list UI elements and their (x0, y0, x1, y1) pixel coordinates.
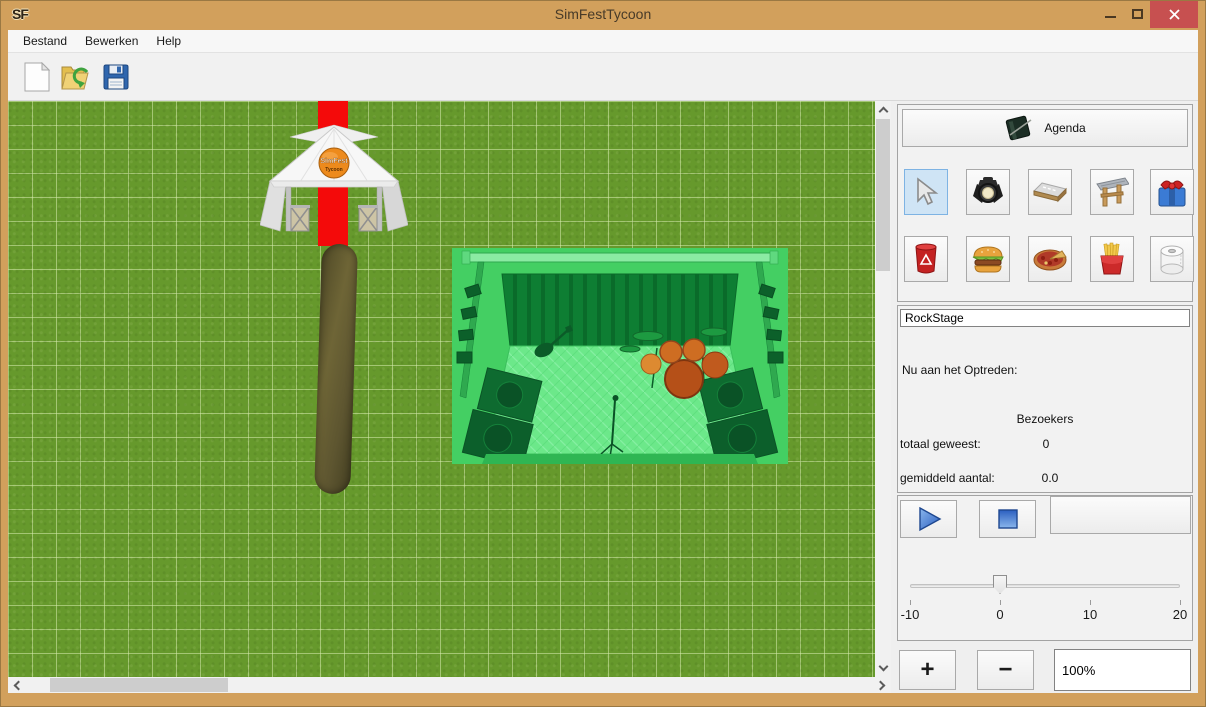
tool-entrance-gate[interactable] (1090, 169, 1134, 215)
scroll-up-button[interactable] (875, 101, 891, 118)
chevron-right-icon (876, 680, 886, 690)
crowd-barrier-left (290, 205, 310, 231)
play-button[interactable] (900, 500, 957, 538)
tool-fries-stand[interactable] (1090, 236, 1134, 282)
tick-mark (1180, 600, 1181, 605)
svg-text:Tycoon: Tycoon (325, 167, 342, 173)
play-icon (916, 506, 942, 532)
save-file-button[interactable] (100, 61, 132, 93)
open-file-button[interactable] (59, 61, 91, 93)
now-performing-label: Nu aan het Optreden: (902, 363, 1017, 377)
slider-track[interactable] (910, 584, 1180, 588)
maximize-button[interactable] (1124, 0, 1150, 28)
average-visitors-value: 0.0 (1030, 471, 1070, 485)
spotlight-icon (972, 176, 1004, 208)
slider-thumb[interactable] (993, 575, 1007, 594)
cursor-icon (912, 177, 940, 207)
minimize-icon (1105, 16, 1116, 18)
vertical-scroll-thumb[interactable] (876, 119, 890, 271)
save-floppy-icon (102, 63, 130, 91)
simfest-logo: SimFest Tycoon (319, 148, 349, 178)
entrance-gate-icon (1095, 176, 1129, 208)
toilet-paper-icon (1157, 243, 1187, 275)
simulation-section: -10 0 10 20 (897, 495, 1193, 641)
menu-bar: Bestand Bewerken Help (8, 30, 1198, 53)
agenda-book-icon (1004, 115, 1034, 141)
total-visitors-label: totaal geweest: (900, 437, 981, 451)
chevron-left-icon (14, 680, 24, 690)
new-file-icon (24, 62, 50, 92)
scroll-down-button[interactable] (875, 660, 891, 677)
festival-map-canvas[interactable]: SimFest Tycoon (8, 101, 891, 693)
agenda-label: Agenda (1044, 121, 1085, 135)
tick-label-zero: 0 (983, 607, 1017, 622)
open-folder-icon (60, 63, 90, 91)
road-tile-icon (1033, 179, 1067, 205)
app-window: SF SimFestTycoon Bestand Bewerken Help (0, 0, 1206, 707)
title-bar[interactable]: SF SimFestTycoon (0, 0, 1206, 30)
tick-label-min: -10 (893, 607, 927, 622)
vertical-scrollbar[interactable] (875, 101, 891, 677)
tick-label-max: 20 (1163, 607, 1197, 622)
menu-help[interactable]: Help (147, 30, 190, 52)
minimize-button[interactable] (1096, 0, 1124, 28)
status-button[interactable] (1050, 496, 1191, 534)
close-icon (1169, 9, 1180, 20)
stop-button[interactable] (979, 500, 1036, 538)
menu-bewerken[interactable]: Bewerken (76, 30, 147, 52)
entrance-tent[interactable]: SimFest Tycoon (260, 121, 408, 246)
maximize-icon (1132, 9, 1143, 19)
tool-trash-bin[interactable] (904, 236, 948, 282)
horizontal-scroll-thumb[interactable] (50, 678, 228, 692)
tool-toilet[interactable] (1150, 236, 1194, 282)
pizza-icon (1032, 245, 1068, 273)
visitors-header: Bezoekers (898, 412, 1192, 426)
tick-mark (910, 600, 911, 605)
trash-bin-icon (912, 243, 940, 275)
zoom-level-field[interactable] (1054, 649, 1191, 691)
tool-select-cursor[interactable] (904, 169, 948, 215)
stage-selected[interactable] (452, 248, 788, 464)
tool-burger-stand[interactable] (966, 236, 1010, 282)
horizontal-scrollbar[interactable] (8, 677, 891, 693)
new-file-button[interactable] (21, 61, 53, 93)
tools-section: Agenda (897, 104, 1193, 302)
tool-gift[interactable] (1150, 169, 1194, 215)
gift-icon (1155, 175, 1189, 209)
crowd-barrier-right (358, 205, 378, 231)
toolbar (8, 53, 1198, 101)
side-panel: Agenda (891, 101, 1198, 693)
tool-spotlight[interactable] (966, 169, 1010, 215)
tick-mark (1000, 600, 1001, 605)
tick-label-ten: 10 (1073, 607, 1107, 622)
average-visitors-label: gemiddeld aantal: (900, 471, 995, 485)
tick-mark (1090, 600, 1091, 605)
agenda-button[interactable]: Agenda (902, 109, 1188, 147)
tool-pizza-stand[interactable] (1028, 236, 1072, 282)
scroll-left-button[interactable] (8, 677, 25, 693)
tool-road-tile[interactable] (1028, 169, 1072, 215)
stage-info-section: Nu aan het Optreden: Bezoekers totaal ge… (897, 305, 1193, 493)
burger-icon (971, 244, 1005, 274)
chevron-down-icon (878, 662, 888, 672)
fries-icon (1097, 242, 1127, 276)
window-title: SimFestTycoon (0, 6, 1206, 22)
scroll-right-button[interactable] (874, 677, 891, 693)
chevron-up-icon (878, 107, 888, 117)
close-button[interactable] (1150, 1, 1198, 28)
stop-icon (997, 508, 1019, 530)
svg-text:SimFest: SimFest (320, 158, 348, 165)
total-visitors-value: 0 (1026, 437, 1066, 451)
speed-slider: -10 0 10 20 (898, 574, 1192, 634)
menu-bestand[interactable]: Bestand (14, 30, 76, 52)
zoom-out-button[interactable]: − (977, 650, 1034, 690)
stage-name-input[interactable] (900, 309, 1190, 327)
zoom-in-button[interactable]: + (899, 650, 956, 690)
